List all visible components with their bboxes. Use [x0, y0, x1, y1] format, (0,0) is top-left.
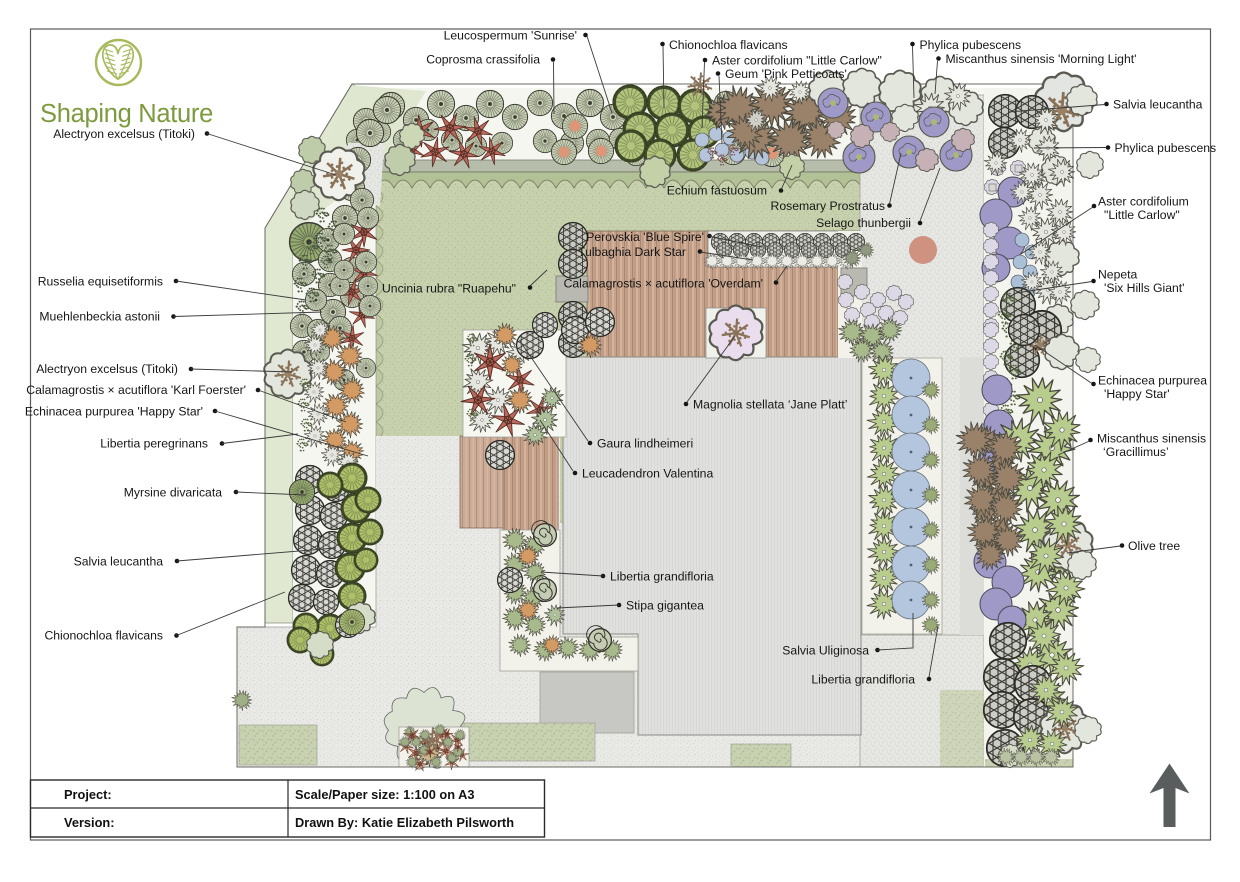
- svg-text:Drawn By: Katie Elizabeth Pils: Drawn By: Katie Elizabeth Pilsworth: [295, 815, 514, 830]
- svg-text:Gaura lindheimeri: Gaura lindheimeri: [597, 437, 693, 451]
- svg-text:Echium fastuosum: Echium fastuosum: [667, 184, 767, 198]
- svg-text:Salvia leucantha: Salvia leucantha: [74, 555, 164, 569]
- svg-text:Chionochloa flavicans: Chionochloa flavicans: [669, 38, 788, 52]
- svg-text:Alectryon excelsus (Titoki): Alectryon excelsus (Titoki): [36, 362, 178, 376]
- svg-text:Coprosma crassifolia: Coprosma crassifolia: [426, 53, 540, 67]
- svg-text:Project:: Project:: [64, 787, 112, 802]
- svg-text:Shaping Nature: Shaping Nature: [40, 100, 213, 128]
- svg-text:Myrsine divaricata: Myrsine divaricata: [124, 486, 222, 500]
- svg-text:Echinacea purpurea: Echinacea purpurea: [1098, 374, 1207, 388]
- svg-text:Version:: Version:: [64, 815, 115, 830]
- svg-text:Muehlenbeckia astonii: Muehlenbeckia astonii: [39, 310, 160, 324]
- svg-text:'Happy Star': 'Happy Star': [1104, 387, 1170, 401]
- svg-text:Uncinia rubra "Ruapehu": Uncinia rubra "Ruapehu": [382, 282, 516, 296]
- svg-text:'Six Hills Giant': 'Six Hills Giant': [1104, 281, 1185, 295]
- svg-text:Leucospermum 'Sunrise': Leucospermum 'Sunrise': [444, 29, 577, 43]
- svg-text:Miscanthus sinensis: Miscanthus sinensis: [1097, 432, 1206, 446]
- svg-text:Miscanthus sinensis 'Morning L: Miscanthus sinensis 'Morning Light': [946, 52, 1137, 66]
- svg-text:Echinacea purpurea 'Happy Star: Echinacea purpurea 'Happy Star': [25, 405, 203, 419]
- svg-text:Salvia leucantha: Salvia leucantha: [1113, 98, 1203, 112]
- svg-text:Nepeta: Nepeta: [1098, 268, 1138, 282]
- svg-text:Aster cordifolium: Aster cordifolium: [1098, 195, 1189, 209]
- svg-text:Chionochloa flavicans: Chionochloa flavicans: [44, 629, 163, 643]
- svg-text:Libertia peregrinans: Libertia peregrinans: [100, 437, 208, 451]
- svg-text:Calamagrostis × acutiflora 'Ov: Calamagrostis × acutiflora 'Overdam': [564, 277, 763, 291]
- svg-text:Scale/Paper size: 1:100 on A3: Scale/Paper size: 1:100 on A3: [295, 787, 474, 802]
- svg-text:"Little Carlow": "Little Carlow": [1104, 208, 1180, 222]
- svg-text:Phylica pubescens: Phylica pubescens: [1115, 141, 1217, 155]
- svg-text:Russelia equisetiformis: Russelia equisetiformis: [38, 275, 163, 289]
- svg-text:Tulbaghia Dark Star: Tulbaghia Dark Star: [578, 245, 686, 259]
- svg-text:‘Gracillimus’: ‘Gracillimus’: [1103, 445, 1169, 459]
- svg-text:Stipa gigantea: Stipa gigantea: [626, 599, 704, 613]
- svg-text:Geum 'Pink Petticoats': Geum 'Pink Petticoats': [725, 67, 847, 81]
- svg-text:Aster cordifolium "Little Carl: Aster cordifolium "Little Carlow": [712, 54, 882, 68]
- svg-text:Libertia grandifloria: Libertia grandifloria: [610, 570, 714, 584]
- svg-text:Leucadendron Valentina: Leucadendron Valentina: [582, 467, 713, 481]
- svg-text:Rosemary Prostratus: Rosemary Prostratus: [771, 199, 885, 213]
- svg-text:Alectryon excelsus (Titoki): Alectryon excelsus (Titoki): [53, 127, 195, 141]
- svg-text:Perovskia 'Blue Spire': Perovskia 'Blue Spire': [586, 230, 704, 244]
- svg-text:Magnolia stellata ‘Jane Platt’: Magnolia stellata ‘Jane Platt’: [693, 398, 847, 412]
- svg-text:Libertia grandifloria: Libertia grandifloria: [811, 673, 915, 687]
- svg-text:Olive tree: Olive tree: [1128, 539, 1180, 553]
- svg-text:Salvia Uliginosa: Salvia Uliginosa: [782, 644, 869, 658]
- svg-text:Calamagrostis × acutiflora 'Ka: Calamagrostis × acutiflora 'Karl Foerste…: [26, 383, 246, 397]
- svg-text:Selago thunbergii: Selago thunbergii: [816, 216, 911, 230]
- svg-text:Phylica pubescens: Phylica pubescens: [920, 38, 1022, 52]
